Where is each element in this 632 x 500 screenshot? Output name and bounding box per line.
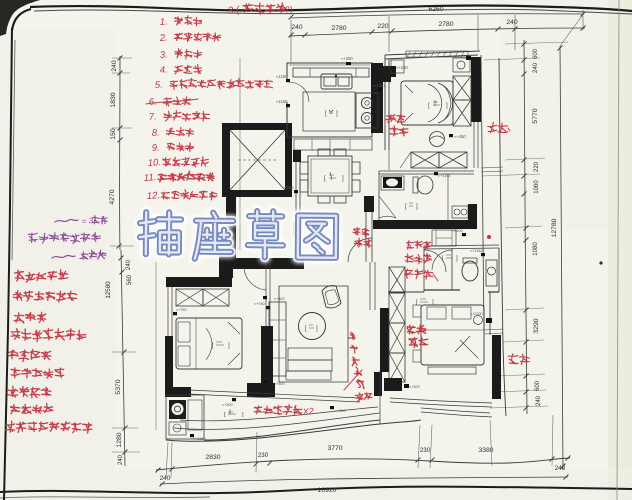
svg-text:240: 240 <box>118 454 124 465</box>
svg-text:2780: 2780 <box>331 25 346 32</box>
svg-text:240: 240 <box>111 60 118 72</box>
svg-text:1060: 1060 <box>534 180 540 194</box>
svg-text:600: 600 <box>535 380 541 391</box>
svg-text:2830: 2830 <box>205 454 220 461</box>
svg-text:220: 220 <box>534 161 540 172</box>
svg-text:≈+450: ≈+450 <box>454 134 466 139</box>
svg-text:≈+250: ≈+250 <box>341 56 353 61</box>
svg-text:11.: 11. <box>143 172 156 184</box>
svg-text:1830: 1830 <box>110 92 117 107</box>
svg-text:≈+300: ≈+300 <box>452 229 463 233</box>
svg-text:4.: 4. <box>159 64 168 76</box>
svg-text:1280: 1280 <box>116 432 123 447</box>
svg-text:≈+300: ≈+300 <box>409 385 420 389</box>
svg-text:1.: 1. <box>159 16 168 28</box>
svg-text:X2: X2 <box>301 406 314 417</box>
svg-text:≈+1150: ≈+1150 <box>372 84 384 88</box>
svg-text:240: 240 <box>126 259 132 270</box>
svg-text:240: 240 <box>555 465 566 472</box>
svg-text:≈+250: ≈+250 <box>396 65 408 70</box>
svg-text:≈+1150: ≈+1150 <box>193 437 205 441</box>
svg-text:7.: 7. <box>148 111 157 123</box>
svg-text:240: 240 <box>160 475 171 482</box>
svg-text:5770: 5770 <box>532 108 539 123</box>
svg-text:12.: 12. <box>146 190 160 202</box>
svg-text:≈300: ≈300 <box>284 185 294 190</box>
svg-text:≈+300: ≈+300 <box>222 403 233 407</box>
svg-text:3770: 3770 <box>327 445 342 452</box>
svg-text:12780: 12780 <box>551 218 558 237</box>
svg-text:≈1150: ≈1150 <box>276 99 288 104</box>
svg-text:5370: 5370 <box>115 379 122 394</box>
svg-text:240: 240 <box>533 62 539 73</box>
svg-text:10.: 10. <box>147 157 161 169</box>
svg-text:230: 230 <box>258 452 269 459</box>
svg-text:≈+1150: ≈+1150 <box>438 174 450 178</box>
svg-text:≈+300: ≈+300 <box>274 382 285 386</box>
svg-text:≈1150: ≈1150 <box>276 74 288 79</box>
svg-text:3290: 3290 <box>533 318 540 333</box>
svg-text:1080: 1080 <box>533 242 539 256</box>
svg-text:240: 240 <box>506 19 518 26</box>
svg-text:600: 600 <box>533 48 539 59</box>
svg-text:150: 150 <box>110 128 117 140</box>
svg-text:2.: 2. <box>158 32 168 44</box>
svg-text:230: 230 <box>420 447 431 454</box>
svg-text:≈+1150: ≈+1150 <box>470 249 482 253</box>
svg-text:≈+300: ≈+300 <box>335 409 346 413</box>
svg-text:≈+2200: ≈+2200 <box>470 312 483 316</box>
svg-text:?): ?) <box>284 4 293 15</box>
svg-text:10920: 10920 <box>318 487 337 494</box>
svg-text:8.: 8. <box>151 127 160 139</box>
svg-text:560: 560 <box>127 274 133 285</box>
svg-text:12580: 12580 <box>105 281 112 299</box>
svg-text:220: 220 <box>377 23 389 30</box>
svg-text:= 3: = 3 <box>81 216 94 226</box>
svg-text:4270: 4270 <box>109 189 116 204</box>
svg-text:2780: 2780 <box>438 21 453 28</box>
svg-text:6260: 6260 <box>428 6 443 13</box>
svg-text:240: 240 <box>291 24 303 31</box>
svg-text:≈+750: ≈+750 <box>254 302 265 306</box>
svg-text:240: 240 <box>536 395 542 406</box>
svg-text:≈+750: ≈+750 <box>176 308 187 312</box>
svg-text:5.: 5. <box>154 79 163 91</box>
svg-text:9.: 9. <box>151 142 160 154</box>
svg-text:3.: 3. <box>159 49 168 61</box>
svg-text:≈+300: ≈+300 <box>274 297 285 301</box>
